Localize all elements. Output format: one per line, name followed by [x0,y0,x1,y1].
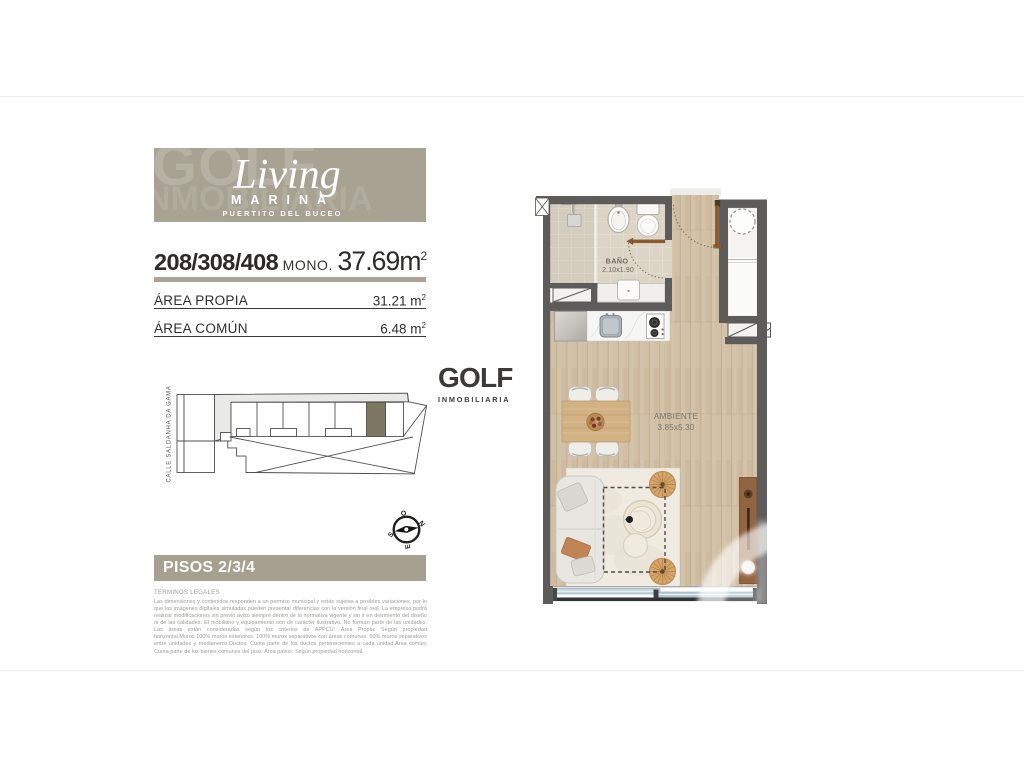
svg-text:3.85x5.30: 3.85x5.30 [658,423,695,432]
svg-text:O: O [400,510,408,518]
svg-text:AMBIENTE: AMBIENTE [654,412,698,421]
svg-text:CALLE SALDANHA DA GAMA: CALLE SALDANHA DA GAMA [167,385,173,482]
svg-text:2.10x1.90: 2.10x1.90 [602,267,634,274]
svg-text:E: E [405,543,413,549]
svg-text:BAÑO: BAÑO [606,257,629,266]
